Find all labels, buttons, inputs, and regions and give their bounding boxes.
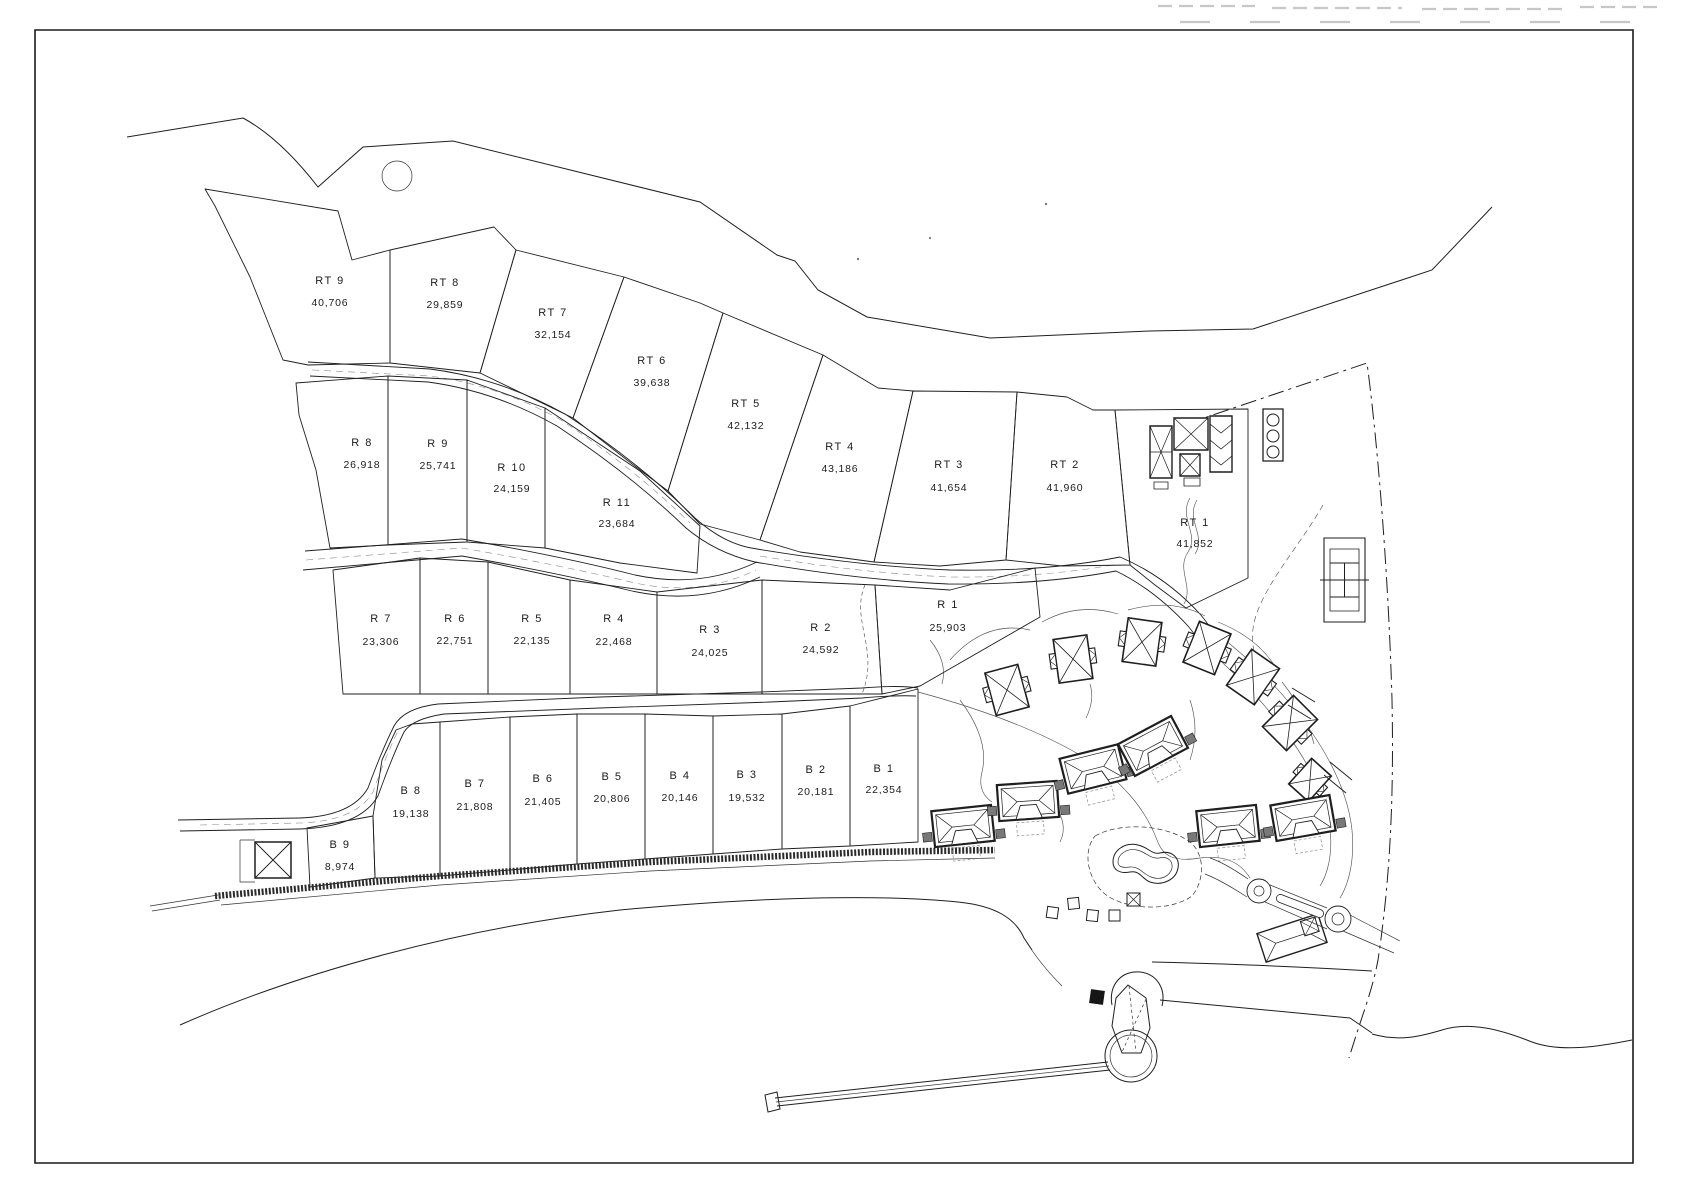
plot-area: 42,132 — [728, 420, 765, 432]
plot-code: B 5 — [601, 771, 622, 783]
plot-area: 19,138 — [393, 808, 430, 820]
plot-b4 — [645, 714, 713, 859]
plot-area: 22,135 — [514, 635, 551, 647]
pool-area — [1046, 827, 1201, 922]
lookout-and-jetty — [765, 972, 1163, 1112]
plot-code: R 11 — [603, 497, 631, 509]
plot-code: RT 4 — [825, 441, 854, 453]
plot-r3 — [657, 580, 762, 694]
villa-icon — [1259, 793, 1349, 858]
plot-b5 — [577, 714, 645, 864]
plot-area: 29,859 — [427, 299, 464, 311]
pavilion-icon — [1109, 910, 1120, 921]
pool-icon — [1113, 844, 1178, 883]
plot-area: 24,025 — [692, 647, 729, 659]
plot-area: 26,918 — [344, 459, 381, 471]
plot-code: B 7 — [464, 778, 485, 790]
plot-area: 8,974 — [325, 861, 355, 873]
plot-code: B 4 — [669, 770, 690, 782]
villa-icon — [1185, 804, 1272, 864]
plot-area: 39,638 — [634, 377, 671, 389]
round-terrace-icon — [1105, 1030, 1157, 1082]
pavilion-icon — [1046, 906, 1058, 918]
plot-area: 20,181 — [798, 786, 835, 798]
plot-r11 — [545, 408, 700, 573]
plot-r6 — [420, 558, 488, 694]
plot-b8 — [373, 722, 440, 878]
plot-area: 20,806 — [594, 793, 631, 805]
plot-area: 41,852 — [1177, 538, 1214, 550]
tennis-court-icon — [1320, 538, 1369, 622]
plot-code: RT 5 — [731, 398, 760, 410]
clubhouse-icon — [1150, 416, 1232, 489]
plot-code: RT 1 — [1180, 517, 1209, 529]
villa-icon — [1108, 711, 1205, 795]
villa-icon — [979, 663, 1035, 717]
plot-area: 40,706 — [312, 297, 349, 309]
plot-code: R 7 — [370, 613, 392, 625]
plot-area: 32,154 — [535, 329, 572, 341]
plot-code: RT 3 — [934, 459, 963, 471]
plot-code: R 4 — [603, 613, 625, 625]
plot-code: RT 8 — [430, 277, 459, 289]
plot-area: 21,405 — [525, 796, 562, 808]
villa-icon — [1116, 617, 1168, 667]
plot-r7 — [333, 558, 420, 694]
plot-code: B 8 — [400, 785, 421, 797]
villa-icon — [1222, 646, 1285, 708]
plot-code: R 3 — [699, 624, 721, 636]
plot-area: 25,903 — [930, 622, 967, 634]
plot-b3 — [713, 714, 782, 854]
plot-code: R 5 — [521, 613, 543, 625]
plot-area: 41,654 — [931, 482, 968, 494]
plot-r2 — [762, 580, 882, 694]
plot-rt4 — [760, 355, 913, 562]
plot-b6 — [510, 714, 577, 870]
plot-area: 22,751 — [437, 635, 474, 647]
shoreline — [150, 850, 1632, 1048]
parking-icon — [1263, 409, 1283, 461]
plot-area: 20,146 — [662, 792, 699, 804]
plot-area: 22,354 — [866, 784, 903, 796]
plot-area: 23,306 — [363, 636, 400, 648]
survey-circle — [382, 161, 412, 191]
plot-code: B 1 — [873, 763, 894, 775]
plot-code: RT 2 — [1050, 459, 1079, 471]
plot-area: 25,741 — [420, 460, 457, 472]
plot-code: B 2 — [805, 764, 826, 776]
site-plan-drawing: RT 9 40,706 RT 8 29,859 RT 7 32,154 RT 6… — [0, 0, 1683, 1190]
plot-code: B 3 — [736, 769, 757, 781]
plot-area: 41,960 — [1047, 482, 1084, 494]
villa-icon — [1177, 619, 1236, 677]
plot-rt3 — [874, 391, 1017, 566]
plot-code: R 10 — [497, 462, 526, 474]
plot-area: 24,592 — [803, 644, 840, 656]
beach-building-icon — [240, 840, 291, 882]
plot-code: R 8 — [351, 437, 373, 449]
pavilion-icon — [1086, 910, 1098, 922]
site-plan-sheet: RT 9 40,706 RT 8 29,859 RT 7 32,154 RT 6… — [0, 0, 1683, 1190]
plot-area: 23,684 — [599, 518, 636, 530]
plot-code: R 6 — [444, 613, 466, 625]
plot-area: 43,186 — [822, 463, 859, 475]
plot-area: 21,808 — [457, 801, 494, 813]
villas — [920, 617, 1352, 962]
crossed-pavilion-icon — [1127, 893, 1140, 906]
plot-b9 — [307, 816, 375, 887]
pavilion-icon — [1068, 897, 1080, 909]
building-icon — [1257, 914, 1327, 962]
scan-artifacts — [857, 6, 1664, 260]
plot-area: 19,532 — [729, 792, 766, 804]
plot-r5 — [488, 562, 570, 694]
plot-b7 — [440, 717, 510, 876]
plot-code: R 9 — [427, 438, 449, 450]
plot-code: RT 9 — [315, 275, 344, 287]
sheet-border — [35, 30, 1633, 1163]
plot-code: RT 7 — [538, 307, 567, 319]
plot-code: R 2 — [810, 622, 832, 634]
plot-area: 22,468 — [596, 636, 633, 648]
marker-square — [1089, 989, 1105, 1005]
plot-code: RT 6 — [637, 355, 666, 367]
villa-icon — [1047, 634, 1099, 684]
plot-code: R 1 — [937, 599, 959, 611]
plot-rt2 — [1006, 392, 1130, 566]
plot-code: B 6 — [532, 773, 553, 785]
plot-rt9 — [205, 189, 390, 365]
plot-code: B 9 — [329, 839, 350, 851]
plot-b2 — [782, 706, 850, 849]
plot-area: 24,159 — [494, 483, 531, 495]
